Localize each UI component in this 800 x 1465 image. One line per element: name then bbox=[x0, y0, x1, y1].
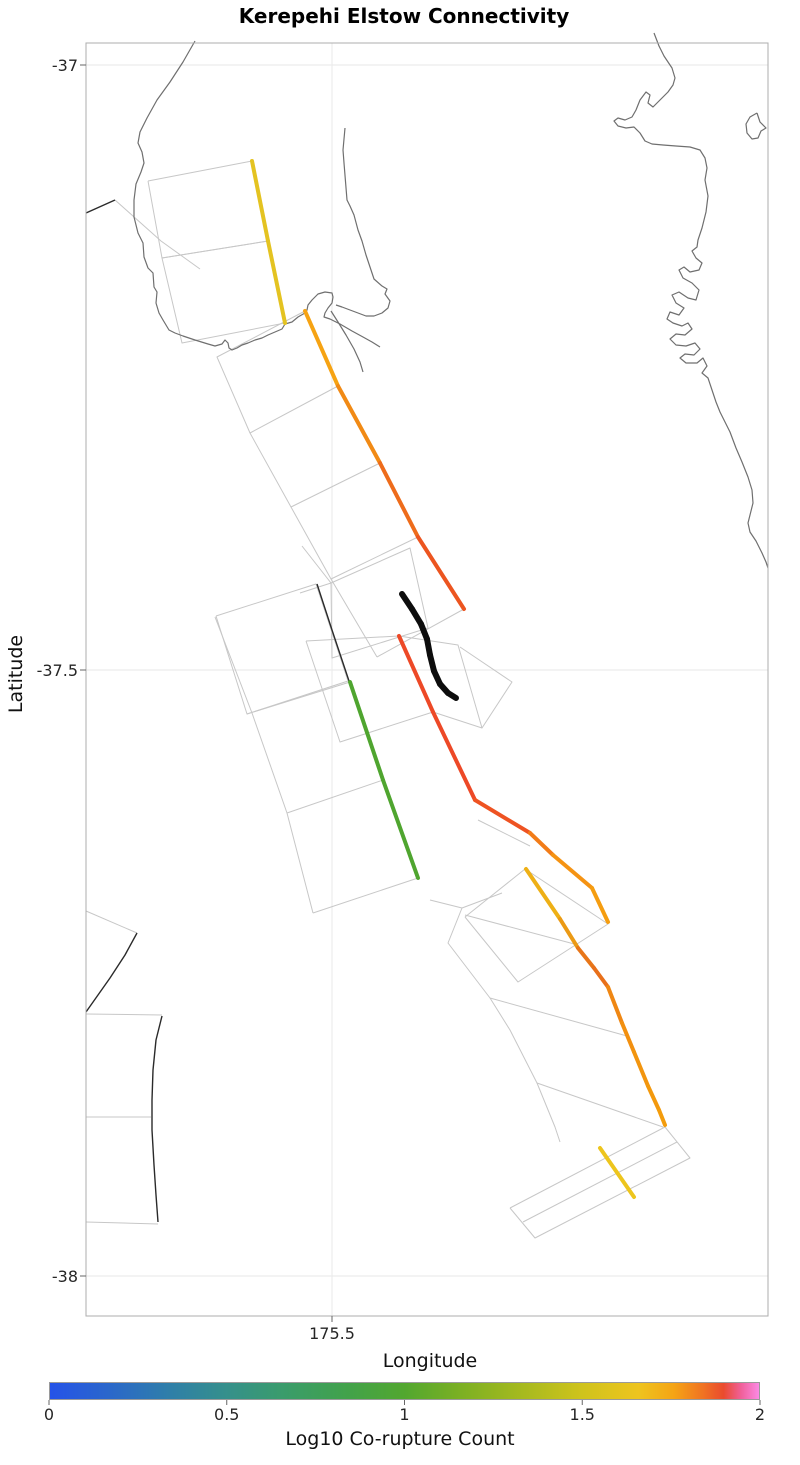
fault-polygon-outline bbox=[291, 463, 380, 507]
y-tick-label: -38 bbox=[18, 1267, 78, 1286]
central-red-orange-trace bbox=[553, 855, 592, 888]
x-tick-label: 175.5 bbox=[292, 1324, 372, 1343]
central-red-orange-trace bbox=[530, 833, 553, 855]
kerepehi-north-yellow-trace bbox=[252, 161, 268, 241]
waihou-east-bank bbox=[336, 128, 390, 316]
elstow-amber-orange-trace bbox=[648, 1086, 659, 1110]
elstow-amber-orange-trace bbox=[594, 968, 608, 987]
colorbar-tick-label: 2 bbox=[730, 1405, 790, 1424]
firth-orange-red-trace bbox=[380, 463, 418, 537]
y-tick-label: -37.5 bbox=[18, 661, 78, 680]
dark-fault-central bbox=[317, 584, 349, 681]
fault-polygon-outline bbox=[430, 893, 502, 908]
coromandel-west-coast bbox=[614, 33, 768, 568]
dark-fault-southwest-diagonal bbox=[86, 933, 137, 1012]
waihou-river bbox=[331, 311, 363, 372]
fault-polygon-outline bbox=[162, 241, 285, 343]
fault-polygon-outline bbox=[300, 546, 331, 593]
fault-polygon-outline bbox=[537, 1083, 663, 1127]
elstow-amber-orange-trace bbox=[622, 1023, 634, 1052]
colorbar-gradient bbox=[49, 1382, 760, 1400]
colorbar-tick-label: 1 bbox=[375, 1405, 435, 1424]
fault-polygon-outline bbox=[478, 820, 530, 846]
central-green-trace bbox=[350, 682, 383, 780]
black-thick-trace bbox=[448, 693, 456, 698]
chart-title: Kerepehi Elstow Connectivity bbox=[4, 4, 800, 28]
fault-polygon-outline bbox=[523, 1142, 677, 1222]
fault-polygon-outline bbox=[287, 780, 383, 813]
elstow-amber-orange-trace bbox=[634, 1052, 648, 1086]
y-tick-label: -37 bbox=[18, 56, 78, 75]
island bbox=[746, 113, 766, 139]
elstow-amber-orange-trace bbox=[560, 919, 578, 948]
fault-polygon-outline bbox=[86, 911, 137, 933]
fault-polygon-outline bbox=[86, 1222, 158, 1224]
central-red-orange-trace bbox=[475, 800, 530, 833]
dark-fault-southwest-curve bbox=[152, 1016, 162, 1222]
dark-fault-northwest bbox=[86, 200, 115, 213]
fault-polygon-outline bbox=[86, 1014, 162, 1015]
kerepehi-north-yellow-trace bbox=[268, 241, 285, 323]
colorbar-tick-label: 1.5 bbox=[552, 1405, 612, 1424]
fault-polygon-outline bbox=[216, 584, 348, 714]
central-red-orange-trace bbox=[592, 888, 608, 922]
south-yellow-trace bbox=[600, 1148, 634, 1197]
fault-polygon-outline bbox=[250, 386, 338, 433]
fault-polygon-outline bbox=[217, 311, 377, 657]
fault-polygon-outline bbox=[247, 682, 350, 714]
elstow-amber-orange-trace bbox=[578, 948, 594, 968]
firth-orange-red-trace bbox=[418, 537, 464, 609]
firth-orange-red-trace bbox=[338, 386, 380, 463]
fault-polygon-outline bbox=[448, 908, 560, 1142]
fault-polygon-outline bbox=[460, 647, 512, 728]
elstow-amber-orange-trace bbox=[526, 869, 560, 919]
colorbar-tick-label: 0 bbox=[19, 1405, 79, 1424]
fault-polygon-outline bbox=[215, 617, 313, 913]
firth-orange-red-trace bbox=[305, 311, 338, 386]
colorbar-label: Log10 Co-rupture Count bbox=[200, 1428, 600, 1450]
map-plot bbox=[0, 0, 800, 1465]
colorbar-tick-label: 0.5 bbox=[197, 1405, 257, 1424]
x-axis-label: Longitude bbox=[330, 1350, 530, 1372]
central-red-orange-trace bbox=[433, 712, 475, 800]
fault-polygon-outline bbox=[313, 878, 418, 913]
elstow-amber-orange-trace bbox=[608, 987, 622, 1023]
fault-polygon-outline bbox=[331, 537, 418, 579]
central-green-trace bbox=[383, 780, 418, 878]
elstow-amber-orange-trace bbox=[659, 1110, 665, 1125]
fault-polygon-outline bbox=[377, 609, 464, 657]
